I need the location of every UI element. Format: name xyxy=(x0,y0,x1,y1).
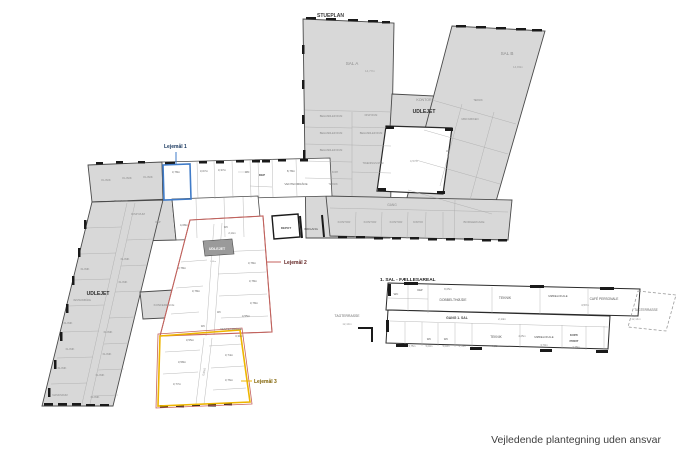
room-label: 8,05m xyxy=(444,287,452,291)
room-label: WC xyxy=(446,150,450,153)
room-label: 3,74m xyxy=(225,353,234,357)
room-label: 4,57m xyxy=(581,303,589,307)
room-label: CAFÉ PERSONALE xyxy=(590,296,619,301)
room-label: BEHANDLER RUM xyxy=(320,148,342,152)
room-label: KONTOR xyxy=(390,220,404,224)
room-label: DEPOT xyxy=(281,226,292,230)
room-label: 12,14m xyxy=(631,317,641,321)
room-label: 3,37m xyxy=(218,168,227,172)
room-label: 5,00m xyxy=(443,345,450,348)
room-label: 1,48m xyxy=(210,261,216,263)
room-label: 2,14m xyxy=(498,317,506,321)
room-label: UDLEJET xyxy=(209,247,226,251)
room-label: SAL B xyxy=(501,51,514,56)
rented-building-masses xyxy=(42,19,545,406)
room-label: 2,14m xyxy=(228,231,235,235)
room-label: KLINIK xyxy=(119,280,128,284)
room-label: TAGTERRASSE xyxy=(634,308,658,312)
room-label: TRÆNINGS RUM xyxy=(363,161,384,165)
room-label: 3,78m xyxy=(192,289,201,293)
room-label: DEP xyxy=(155,220,161,224)
room-label: BEHANDLER RUM xyxy=(360,131,382,135)
floorplan-canvas: Lejemål 1 Lejemål 2 Lejemål 3 STUEPLAN 1… xyxy=(0,0,687,457)
room-label: DEP xyxy=(259,173,265,177)
room-label: 3,78m xyxy=(248,261,257,265)
room-label: 3,76m xyxy=(225,378,234,382)
room-label: VENTEOMRÅDE xyxy=(284,181,307,186)
room-label: KLINIK xyxy=(81,267,90,271)
room-label: 14,77m xyxy=(365,69,376,73)
room-label: 3,58m xyxy=(178,360,187,364)
gang-kontor-band xyxy=(326,196,512,240)
room-label: WC xyxy=(444,337,448,341)
ground-plan-title: STUEPLAN xyxy=(317,13,344,19)
room-label: GANG xyxy=(387,203,397,207)
firstfloor-left-wall-mark xyxy=(358,328,372,342)
lease-1-label: Lejemål 1 xyxy=(164,143,187,150)
room-label: KLINIK xyxy=(104,330,113,334)
room-label: WC xyxy=(245,171,249,174)
room-label: KLINIK xyxy=(121,257,130,261)
room-label: DISP RUM xyxy=(365,113,378,117)
room-label: VENTEOMRÅDE xyxy=(73,299,91,302)
room-label: 12,10m xyxy=(342,322,352,326)
room-label: 9,25m xyxy=(492,344,500,348)
lease-3-label: Lejemål 3 xyxy=(254,378,277,385)
room-label: KLINIK xyxy=(122,176,132,180)
room-label: 4,55m xyxy=(242,314,251,318)
room-label: TAGTERRASSE xyxy=(335,314,361,318)
room-label: KLINIK xyxy=(58,366,67,370)
room-label: 4,25m xyxy=(518,334,525,338)
room-label: 3,78m xyxy=(249,279,258,283)
room-label: KLINIK xyxy=(101,178,111,182)
room-label: 3,78m xyxy=(172,170,181,174)
room-label: WC xyxy=(201,324,205,328)
room-label: KONTOR xyxy=(416,98,432,102)
room-label: 3,78m xyxy=(178,266,187,270)
lease-2-label: Lejemål 2 xyxy=(284,259,307,266)
room-label: MØDELOKALE xyxy=(534,335,553,339)
room-label: 5,00m xyxy=(426,345,433,348)
room-label: KOPI xyxy=(332,170,338,174)
room-label: KLINIK xyxy=(96,373,105,377)
room-label: BEHANDLER RUM xyxy=(320,114,342,118)
room-label: INDGANG xyxy=(304,227,319,231)
room-label: 8,78m xyxy=(287,169,296,173)
room-label: 3,07m xyxy=(200,169,209,173)
floorplan-drawing: Lejemål 1 Lejemål 2 Lejemål 3 STUEPLAN 1… xyxy=(0,0,687,457)
first-floor-title: 1. SAL - FÆLLESAREAL xyxy=(380,277,436,283)
disclaimer-text: Vejledende plantegning uden ansvar xyxy=(491,434,661,446)
room-label: KLINIK xyxy=(64,321,73,325)
room-label: DOBBELTHØJDE xyxy=(439,298,467,302)
room-label: DEP xyxy=(417,288,423,292)
room-label: GANG xyxy=(114,199,122,203)
room-label: VENTEOMRÅDE xyxy=(220,326,242,331)
room-label: UDLEJET xyxy=(413,109,436,115)
room-label: 5,75m xyxy=(409,345,416,348)
room-label: MØDELOKALE xyxy=(548,294,567,298)
room-label: 3,55m xyxy=(186,338,195,342)
room-label: 4,08m xyxy=(180,223,189,227)
room-label: 14,80m xyxy=(513,65,524,69)
room-label: BORGERCAFE xyxy=(463,220,484,224)
room-label: 3,78m xyxy=(572,345,579,349)
room-label: WC xyxy=(217,311,221,314)
room-label: WC xyxy=(394,292,399,296)
room-label: KLINIK xyxy=(66,347,75,351)
room-label: KLINIK xyxy=(103,352,112,356)
room-label: 3,70m xyxy=(540,343,547,347)
room-label: KONTOR xyxy=(364,220,378,224)
room-label: 4,57m xyxy=(410,159,419,163)
room-label: UDLEJET xyxy=(87,291,110,297)
room-label: KOPI/ xyxy=(570,333,578,337)
room-label: KONTOR xyxy=(413,222,423,224)
room-label: DISP RUM xyxy=(131,212,145,216)
room-label: 5,75m xyxy=(459,345,466,348)
left-top-klinik-block xyxy=(88,162,163,202)
room-label: PRINT xyxy=(570,339,579,343)
room-label: KLINIK xyxy=(143,175,153,179)
room-label: MASKINRUM xyxy=(52,394,67,397)
room-label: KLINIK xyxy=(91,395,100,399)
room-label: MINI KØKKEN xyxy=(461,117,478,121)
room-label: 3,31m xyxy=(235,334,243,338)
room-label: WC xyxy=(224,225,228,229)
room-label: 3,77m xyxy=(173,382,182,386)
room-label: TEKNIK xyxy=(328,182,338,186)
room-label: GANG 1. SAL xyxy=(446,316,468,320)
room-label: 3,78m xyxy=(250,301,259,305)
room-label: TEKNIK xyxy=(473,98,483,102)
vacant-rooms xyxy=(158,126,640,406)
room-label: TEKNIK xyxy=(499,296,512,300)
room-label: BEHANDLER RUM xyxy=(320,131,342,135)
room-label: TEKNIK xyxy=(490,335,502,339)
room-label: SAL A xyxy=(346,61,360,66)
room-label: WC xyxy=(427,337,431,341)
room-label: KONTOR xyxy=(338,220,352,224)
room-label: KONFERENCE xyxy=(154,303,175,307)
